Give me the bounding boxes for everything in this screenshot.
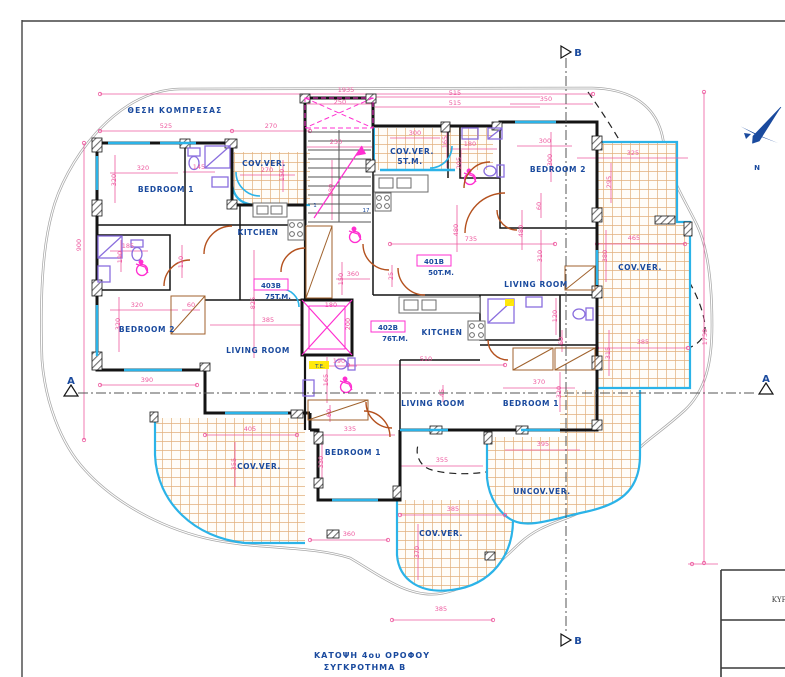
- floorplan-drawing: B B A A N ΘΕΣΗ ΚΟΜΠΡΕΣΑΣ 193551551525035…: [0, 0, 785, 677]
- room-label: BEDROOM 2: [530, 165, 586, 174]
- compressor-area-label: ΘΕΣΗ ΚΟΜΠΡΕΣΑΣ: [128, 106, 223, 115]
- room-label: UNCOV.VER.: [513, 487, 570, 496]
- dimension-label: 335: [344, 425, 356, 433]
- dimension-label: 735: [465, 235, 477, 243]
- room-label: 5T.M.: [397, 157, 422, 166]
- dimension-label: 395: [537, 440, 549, 448]
- drawing-title: ΚΑΤΟΨΗ 4ου ΟΡΟΦΟΥ ΣΥΓΚΡΟΤΗΜΑ Β: [314, 651, 430, 672]
- dimension-label: 385: [262, 316, 274, 324]
- title-line1: ΚΑΤΟΨΗ 4ου ΟΡΟΦΟΥ: [314, 651, 430, 660]
- dimension-label: 320: [131, 301, 143, 309]
- dimension-label: 325: [627, 149, 639, 157]
- dimension-label: 60: [557, 337, 565, 345]
- dimension-label: 515: [449, 89, 461, 97]
- section-letter-b-bottom: B: [574, 636, 582, 647]
- dimension-label: 480: [452, 224, 460, 236]
- dimension-label: 525: [160, 122, 172, 130]
- section-marker-b-bottom: B: [561, 634, 582, 647]
- dimension-label: 380: [601, 250, 609, 262]
- room-label: KITCHEN: [421, 328, 462, 337]
- dimension-label: 45: [438, 389, 446, 397]
- dimension-label: 515: [449, 99, 461, 107]
- dimension-label: 480: [517, 225, 525, 237]
- dimension-label: 900: [75, 239, 83, 251]
- dimension-label: 120: [551, 310, 559, 322]
- dimension-label: 370: [533, 378, 545, 386]
- floorplan-svg: B B A A N ΘΕΣΗ ΚΟΜΠΡΕΣΑΣ 193551551525035…: [0, 0, 785, 677]
- titleblock-text: ΚΥΡ: [772, 596, 785, 604]
- room-label: LIVING ROOM: [401, 399, 465, 408]
- dimension-label: 1935: [338, 86, 355, 94]
- room-label: LIVING ROOM: [504, 280, 568, 289]
- apartment-area: 76T.M.: [382, 335, 408, 343]
- dimension-label: 480: [327, 184, 335, 196]
- dimension-label: 385: [435, 605, 447, 613]
- apartment-area: 75T.M.: [265, 293, 291, 301]
- apartment-id: 401B: [424, 258, 444, 266]
- dimension-label: 355: [436, 456, 448, 464]
- section-marker-a-right: A: [759, 374, 773, 394]
- room-label: KITCHEN: [237, 228, 278, 237]
- dimension-label: 310: [536, 250, 544, 262]
- dimension-label: 185: [122, 242, 134, 250]
- dimension-label: 150: [278, 169, 286, 181]
- dimension-label: 190: [333, 357, 345, 365]
- room-label: BEDROOM 1: [325, 448, 381, 457]
- section-marker-b-top: B: [561, 46, 582, 59]
- dimension-label: 250: [334, 98, 346, 106]
- dimension-label: 60: [535, 202, 543, 210]
- dimension-label: 1750: [701, 329, 709, 346]
- dimension-label: 385: [637, 338, 649, 346]
- dimension-label: 390: [141, 376, 153, 384]
- dimension-label: 110: [177, 256, 185, 268]
- apartment-area: 50T.M.: [428, 269, 454, 277]
- room-label: BEDROOM 1: [138, 185, 194, 194]
- yellow-mark: [505, 299, 514, 306]
- dimension-label: 465: [628, 234, 640, 242]
- dimension-label: 315: [604, 347, 612, 359]
- dimension-label: 270: [265, 122, 277, 130]
- dimension-label: 825: [249, 297, 257, 309]
- room-label: COV.VER.: [237, 462, 281, 471]
- room-label: COV.VER.: [390, 147, 434, 156]
- dimension-label: 295: [605, 176, 613, 188]
- apartment-id: 402B: [378, 324, 398, 332]
- section-marker-a-left: A: [64, 376, 78, 396]
- room-label: BEDROOM 2: [119, 325, 175, 334]
- dimension-label: 60: [325, 409, 333, 417]
- dimension-label: 250: [330, 138, 342, 146]
- dimension-label: 200: [344, 318, 352, 330]
- dimension-label: 350: [540, 95, 552, 103]
- stair-number: 17: [363, 208, 370, 214]
- section-letter-b-top: B: [574, 48, 582, 59]
- dimension-label: 510: [420, 355, 432, 363]
- dimension-label: 360: [347, 270, 359, 278]
- dimension-label: 145: [193, 163, 205, 171]
- room-label: COV.VER.: [242, 159, 286, 168]
- dimension-label: 190: [116, 251, 124, 263]
- dimension-label: 330: [317, 456, 325, 468]
- room-label: BEDROOM 1: [503, 399, 559, 408]
- dimension-label: 320: [137, 164, 149, 172]
- dimension-label: 180: [325, 301, 337, 309]
- room-label: COV.VER.: [618, 263, 662, 272]
- dimension-label: 25: [387, 272, 395, 280]
- dimension-label: 165: [441, 136, 449, 148]
- stair-number: 1: [313, 203, 317, 209]
- dimension-label: 165: [322, 374, 330, 386]
- dimension-label: 180: [464, 140, 476, 148]
- special-label: T.E.: [314, 364, 325, 370]
- north-label: N: [754, 164, 760, 172]
- dimension-label: 300: [539, 137, 551, 145]
- dimension-label: 405: [244, 425, 256, 433]
- room-label: COV.VER.: [419, 529, 463, 538]
- apartment-id: 403B: [261, 282, 281, 290]
- dimension-label: 60: [187, 301, 195, 309]
- room-label: LIVING ROOM: [226, 346, 290, 355]
- dimension-label: 205: [455, 157, 463, 169]
- dimension-label: 320: [555, 386, 563, 398]
- dimension-label: 360: [343, 530, 355, 538]
- title-line2: ΣΥΓΚΡΟΤΗΜΑ Β: [324, 663, 406, 672]
- title-block: ΚΥΡ: [721, 570, 785, 677]
- dimension-label: 385: [447, 505, 459, 513]
- dimension-label: 150: [337, 273, 345, 285]
- dimension-label: 300: [409, 129, 421, 137]
- dimension-label: 320: [110, 174, 118, 186]
- dimension-label: 370: [413, 546, 421, 558]
- north-compass-icon: N: [737, 95, 785, 172]
